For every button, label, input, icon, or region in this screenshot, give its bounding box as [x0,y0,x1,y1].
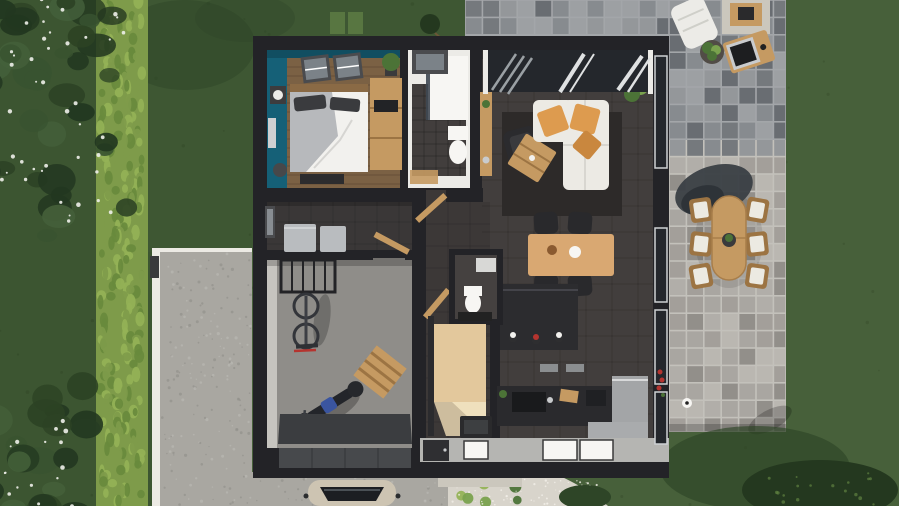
tv-on-dresser [374,100,398,112]
toilet-tank [448,126,468,140]
wall-unit-vent-1 [540,364,558,372]
centerpiece-plant [725,234,733,242]
trimmed-bush-1 [330,12,345,34]
wardrobe [370,78,402,170]
outdoor-chair-6-cushion [749,267,765,285]
flowers-white-2 [556,332,562,338]
glazing-glass [486,50,653,92]
stair-stringer [428,316,434,436]
window-flowers-1 [658,370,663,375]
floorplan-3d-render [0,0,899,506]
glazing-post-left [483,50,488,94]
dining-chair-2 [567,211,592,235]
flowers-white-1 [510,332,516,338]
pillow-right [329,97,360,113]
car [304,480,401,506]
east-window-1 [655,228,667,302]
outdoor-chairs-right [744,196,770,289]
outdoor-chairs-left [688,197,714,290]
porch-slab [438,478,522,487]
bread [547,245,557,255]
outdoor-chair-4-cushion [749,201,766,219]
south-window-1 [543,440,577,460]
kitchen-plant [499,390,507,398]
window-flowers-leaf [661,393,665,397]
south-window-small [464,441,488,459]
wall-unit-vent-2 [566,364,584,372]
wall-picture [268,118,276,148]
north-glazing [483,50,653,94]
outdoor-chair-5-cushion [749,235,765,252]
wc-cabinet [476,258,496,272]
toilet-bowl [449,140,467,164]
front-door-handle [443,448,446,451]
glazing-post-right [648,50,653,94]
plant-bedroom [382,53,400,71]
wc-toilet-bowl [465,293,481,313]
bed-bench [300,174,344,184]
staircase [434,324,486,402]
bathroom-window-glass [416,54,444,70]
soccer-ball-patch [685,401,689,405]
entry-mat-center [464,420,488,434]
east-window-3 [655,392,667,444]
sideboard-lamp [483,157,490,164]
fire-table-center [738,7,754,20]
flowers-red [533,334,539,340]
bath-mat [410,170,438,184]
south-window-2 [580,440,613,460]
window-flowers-2 [660,378,665,383]
outdoor-chair-1-cushion [693,201,709,219]
utility-window-glass [267,209,273,235]
faucet [547,397,553,403]
bike-red-accent [294,350,316,351]
stool [273,163,287,177]
wc-mat [458,312,492,321]
car-mirror-left [304,494,309,499]
outdoor-chair-3-cushion [693,267,710,285]
bedside-lamp [273,90,283,100]
bed-headboard [290,84,368,92]
sideboard-plant [482,100,490,108]
dining-chair-1 [533,211,558,235]
kitchen-sink [512,392,546,412]
east-glazing-top [655,56,667,168]
window-flowers-3 [657,386,662,391]
car-windshield [320,487,384,501]
garage-left-wall [267,258,277,448]
gate-post [150,256,159,278]
outdoor-chair-2-cushion [693,235,709,252]
cooktop [586,390,606,406]
wall-garage-hall-lower [412,318,426,448]
car-mirror-right [396,494,401,499]
appliance [320,226,346,252]
wall-garage-hall-upper [412,190,426,282]
cutting-board [559,389,578,403]
plate [569,246,581,258]
wall-below-bedroom [253,188,483,202]
trimmed-bush-2 [348,12,363,34]
house [253,36,669,487]
small-tree [420,14,440,34]
planter-plant-c [707,51,717,61]
driveway-edging-left [152,250,160,506]
garage-door-mat [278,414,412,444]
